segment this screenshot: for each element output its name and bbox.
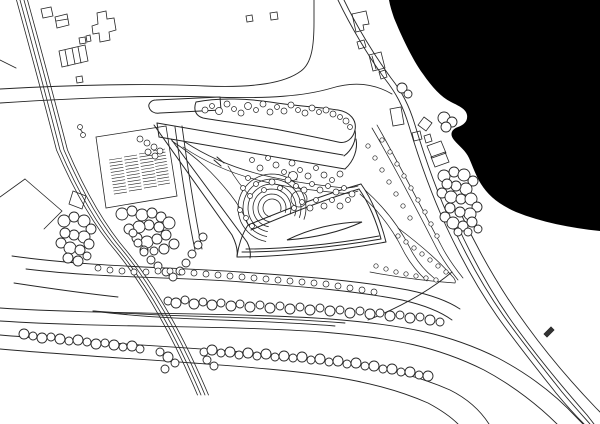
bushes-shape bbox=[150, 247, 158, 255]
bushes-shape bbox=[163, 217, 175, 229]
trees-shape bbox=[371, 289, 377, 295]
trees-shape bbox=[307, 205, 313, 211]
site-plan-svg bbox=[0, 0, 600, 424]
context-buildings-shape bbox=[76, 76, 83, 83]
bushes-shape bbox=[474, 225, 482, 233]
bushes-shape bbox=[256, 301, 264, 309]
trees-shape bbox=[248, 194, 253, 199]
bushes-shape bbox=[376, 309, 384, 317]
trees-shape bbox=[305, 173, 311, 179]
trees-shape bbox=[254, 108, 259, 113]
trees-shape bbox=[395, 162, 399, 166]
bushes-shape bbox=[194, 241, 202, 249]
bushes-shape bbox=[351, 358, 361, 368]
main-building-shape bbox=[361, 184, 386, 242]
bushes-shape bbox=[199, 298, 207, 306]
trees-shape bbox=[273, 162, 279, 168]
trees-shape bbox=[310, 182, 315, 187]
trees-shape bbox=[380, 168, 384, 172]
trees-shape bbox=[366, 144, 370, 148]
bushes-shape bbox=[147, 256, 155, 264]
bushes-shape bbox=[159, 244, 169, 254]
trees-shape bbox=[317, 187, 323, 193]
bushes-shape bbox=[19, 329, 29, 339]
trees-shape bbox=[311, 280, 317, 286]
bushes-shape bbox=[243, 348, 253, 358]
trees-shape bbox=[301, 187, 307, 193]
trees-shape bbox=[412, 246, 416, 250]
trees-shape bbox=[323, 281, 329, 287]
trees-shape bbox=[137, 136, 143, 142]
trees-shape bbox=[246, 176, 251, 181]
bushes-shape bbox=[261, 349, 271, 359]
bushes-shape bbox=[235, 351, 243, 359]
amphitheater-shape bbox=[248, 184, 296, 232]
bushes-shape bbox=[217, 349, 225, 357]
bushes-shape bbox=[129, 229, 137, 237]
bushes-shape bbox=[73, 256, 83, 266]
bushes-shape bbox=[415, 371, 423, 379]
bushes-shape bbox=[265, 303, 275, 313]
bushes-shape bbox=[226, 301, 236, 311]
bushes-shape bbox=[397, 368, 405, 376]
trees-shape bbox=[238, 208, 243, 213]
trees-shape bbox=[296, 108, 301, 113]
bushes-shape bbox=[147, 208, 157, 218]
trees-shape bbox=[152, 153, 158, 159]
context-buildings-shape bbox=[72, 48, 75, 64]
context-buildings-shape bbox=[78, 47, 81, 63]
trees-shape bbox=[289, 160, 295, 166]
bushes-shape bbox=[69, 212, 79, 222]
trees-shape bbox=[299, 279, 305, 285]
bushes-shape bbox=[60, 228, 70, 238]
bushes-shape bbox=[91, 339, 101, 349]
bushes-shape bbox=[225, 347, 235, 357]
main-building-shape bbox=[237, 242, 386, 257]
trees-shape bbox=[167, 268, 173, 274]
trees-shape bbox=[326, 184, 331, 189]
context-buildings-shape bbox=[56, 19, 68, 21]
trees-shape bbox=[330, 111, 336, 117]
trees-shape bbox=[444, 270, 448, 274]
trees-shape bbox=[424, 276, 428, 280]
context-buildings-shape bbox=[390, 107, 404, 126]
trees-shape bbox=[143, 269, 149, 275]
trees-shape bbox=[241, 186, 246, 191]
trees-shape bbox=[292, 206, 297, 211]
trees-shape bbox=[314, 198, 319, 203]
bushes-shape bbox=[161, 230, 171, 240]
trees-shape bbox=[95, 265, 101, 271]
trees-shape bbox=[416, 198, 420, 202]
bushes-shape bbox=[210, 362, 218, 370]
garden-paths-shape bbox=[370, 228, 455, 283]
trees-shape bbox=[374, 264, 378, 268]
trees-shape bbox=[215, 272, 221, 278]
trees-shape bbox=[155, 268, 161, 274]
bushes-shape bbox=[325, 306, 335, 316]
bushes-shape bbox=[245, 302, 255, 312]
bushes-shape bbox=[83, 252, 91, 260]
bushes-shape bbox=[171, 359, 179, 367]
trees-shape bbox=[107, 267, 113, 273]
trees-shape bbox=[269, 179, 275, 185]
context-buildings-shape bbox=[92, 11, 116, 42]
trees-shape bbox=[435, 234, 439, 238]
bushes-shape bbox=[199, 233, 207, 241]
bushes-shape bbox=[217, 299, 225, 307]
trees-shape bbox=[323, 107, 329, 113]
bushes-shape bbox=[449, 167, 459, 177]
bushes-shape bbox=[365, 309, 375, 319]
water-body bbox=[389, 0, 600, 231]
bushes-shape bbox=[387, 364, 397, 374]
trees-shape bbox=[330, 198, 335, 203]
bushes-shape bbox=[336, 306, 344, 314]
trees-shape bbox=[314, 166, 319, 171]
trees-shape bbox=[394, 192, 398, 196]
bushes-shape bbox=[64, 242, 76, 254]
trees-shape bbox=[317, 110, 322, 115]
trees-shape bbox=[250, 224, 255, 229]
context-buildings-shape bbox=[379, 70, 387, 79]
context-buildings-shape bbox=[79, 37, 86, 44]
trees-shape bbox=[428, 258, 432, 262]
trees-shape bbox=[388, 150, 392, 154]
trees-shape bbox=[408, 216, 412, 220]
roads-shape bbox=[182, 126, 202, 249]
bushes-shape bbox=[271, 353, 279, 361]
bushes-shape bbox=[188, 250, 196, 258]
bushes-shape bbox=[343, 360, 351, 368]
bushes-shape bbox=[305, 305, 315, 315]
roads-shape bbox=[0, 335, 489, 424]
trees-shape bbox=[281, 108, 287, 114]
trees-shape bbox=[434, 278, 438, 282]
trees-shape bbox=[260, 101, 266, 107]
bushes-shape bbox=[101, 339, 109, 347]
bushes-shape bbox=[154, 222, 164, 232]
trees-shape bbox=[267, 109, 273, 115]
trees-shape bbox=[401, 204, 405, 208]
bushes-shape bbox=[379, 365, 387, 373]
trees-shape bbox=[342, 186, 347, 191]
bushes-shape bbox=[84, 239, 94, 249]
bushes-shape bbox=[236, 300, 244, 308]
trees-shape bbox=[309, 105, 315, 111]
bushes-shape bbox=[144, 220, 154, 230]
trees-shape bbox=[131, 269, 137, 275]
trees-shape bbox=[409, 186, 413, 190]
trees-shape bbox=[337, 203, 343, 209]
context-buildings-shape bbox=[41, 7, 53, 18]
trees-shape bbox=[347, 285, 353, 291]
bushes-shape bbox=[116, 208, 128, 220]
bushes-shape bbox=[171, 298, 181, 308]
bushes-shape bbox=[445, 203, 455, 213]
trees-shape bbox=[294, 184, 299, 189]
bushes-shape bbox=[156, 348, 164, 356]
trees-shape bbox=[380, 138, 384, 142]
bushes-shape bbox=[136, 209, 148, 221]
trees-shape bbox=[202, 107, 208, 113]
trees-shape bbox=[266, 156, 271, 161]
bushes-shape bbox=[285, 304, 295, 314]
bushes-shape bbox=[416, 313, 424, 321]
trees-shape bbox=[396, 234, 400, 238]
trees-shape bbox=[210, 104, 215, 109]
trees-shape bbox=[359, 287, 365, 293]
trees-shape bbox=[216, 108, 223, 115]
bushes-shape bbox=[279, 351, 289, 361]
bushes-shape bbox=[316, 304, 324, 312]
bushes-shape bbox=[169, 239, 179, 249]
trees-shape bbox=[263, 276, 269, 282]
trees-shape bbox=[145, 149, 151, 155]
bushes-shape bbox=[276, 302, 284, 310]
trees-shape bbox=[335, 283, 341, 289]
roads-shape bbox=[0, 0, 314, 89]
water-body-shape bbox=[389, 0, 600, 231]
trees-shape bbox=[429, 222, 433, 226]
trees-shape bbox=[337, 171, 343, 177]
bushes-shape bbox=[289, 354, 297, 362]
trees-shape bbox=[250, 158, 255, 163]
bushes-shape bbox=[182, 259, 190, 267]
trees-shape bbox=[300, 200, 305, 205]
context-buildings-shape bbox=[431, 152, 449, 167]
trees-shape bbox=[157, 148, 163, 154]
bushes-shape bbox=[441, 122, 451, 132]
bushes-shape bbox=[333, 356, 343, 366]
trees-shape bbox=[333, 189, 339, 195]
bushes-shape bbox=[207, 300, 217, 310]
context-buildings-shape bbox=[372, 56, 376, 69]
trees-shape bbox=[394, 270, 398, 274]
trees-shape bbox=[278, 186, 283, 191]
context-buildings-shape bbox=[25, 179, 62, 229]
bushes-shape bbox=[73, 335, 83, 345]
trees-shape bbox=[245, 103, 252, 110]
roads-shape bbox=[0, 349, 458, 424]
trees-shape bbox=[404, 272, 408, 276]
bushes-shape bbox=[65, 337, 73, 345]
garden-paths bbox=[172, 125, 463, 283]
bushes-shape bbox=[136, 345, 144, 353]
bushes-shape bbox=[307, 356, 315, 364]
trees-shape bbox=[254, 182, 259, 187]
bushes-shape bbox=[189, 299, 199, 309]
bushes-shape bbox=[253, 352, 261, 360]
context-buildings-shape bbox=[86, 35, 91, 42]
trees-shape bbox=[349, 191, 355, 197]
bushes-shape bbox=[447, 217, 459, 229]
amphitheater-shape bbox=[263, 199, 281, 217]
bushes-shape bbox=[161, 365, 169, 373]
bushes-shape bbox=[423, 371, 433, 381]
trees-shape bbox=[251, 275, 257, 281]
trees-shape bbox=[257, 165, 263, 171]
bushes-shape bbox=[455, 207, 465, 217]
roads-shape bbox=[0, 60, 16, 68]
roads-shape bbox=[462, 216, 600, 412]
trees-shape bbox=[321, 203, 327, 209]
bushes-shape bbox=[55, 334, 65, 344]
bushes-shape bbox=[109, 340, 119, 350]
bushes-shape bbox=[134, 239, 142, 247]
roads-shape bbox=[544, 327, 554, 337]
trees-shape bbox=[373, 156, 377, 160]
trees-shape bbox=[387, 180, 391, 184]
bushes-shape bbox=[47, 333, 55, 341]
trees-shape bbox=[423, 210, 427, 214]
roads-shape bbox=[14, 283, 118, 297]
trees-shape bbox=[420, 252, 424, 256]
bushes-shape bbox=[296, 303, 304, 311]
bushes-shape bbox=[451, 181, 461, 191]
context-buildings-shape bbox=[0, 179, 25, 197]
main-building-shape bbox=[287, 222, 362, 240]
trees-shape bbox=[287, 278, 293, 284]
trees-shape bbox=[191, 270, 197, 276]
bushes-shape bbox=[456, 194, 466, 204]
trees-shape bbox=[346, 198, 351, 203]
bushes-shape bbox=[207, 345, 217, 355]
trees-shape bbox=[302, 110, 308, 116]
bushes-shape bbox=[37, 333, 47, 343]
roads-shape bbox=[0, 321, 557, 424]
bushes-shape bbox=[127, 206, 137, 216]
site-plan-canvas bbox=[0, 0, 600, 424]
main-building-shape bbox=[159, 137, 345, 169]
context-buildings-shape bbox=[246, 15, 253, 22]
trees-shape bbox=[298, 168, 303, 173]
bushes-shape bbox=[425, 315, 435, 325]
bushes-shape bbox=[385, 311, 395, 321]
trees-shape bbox=[330, 178, 335, 183]
bushes-shape bbox=[69, 230, 79, 240]
trees-shape bbox=[384, 267, 388, 271]
bushes-shape bbox=[83, 338, 91, 346]
trees-shape bbox=[224, 101, 230, 107]
trees-shape bbox=[179, 269, 185, 275]
context-buildings-shape bbox=[65, 50, 68, 66]
bushes-shape bbox=[442, 179, 452, 189]
trees-shape bbox=[275, 105, 280, 110]
trees-shape bbox=[239, 274, 245, 280]
roads-shape bbox=[0, 308, 583, 424]
trees-shape bbox=[151, 144, 157, 150]
bushes-shape bbox=[464, 228, 472, 236]
trees-shape bbox=[414, 274, 418, 278]
context-buildings-shape bbox=[270, 12, 278, 20]
trees-shape bbox=[404, 240, 408, 244]
trees-shape bbox=[282, 170, 287, 175]
bushes bbox=[19, 83, 482, 381]
trees-shape bbox=[348, 125, 353, 130]
trees-shape bbox=[343, 118, 349, 124]
trees-shape bbox=[321, 172, 327, 178]
bushes-shape bbox=[396, 311, 404, 319]
bushes-shape bbox=[297, 352, 307, 362]
bushes-shape bbox=[356, 307, 364, 315]
bushes-shape bbox=[361, 362, 369, 370]
trees-shape bbox=[203, 271, 209, 277]
bushes-shape bbox=[127, 341, 137, 351]
bushes-shape bbox=[63, 253, 73, 263]
bushes-shape bbox=[152, 234, 162, 244]
bushes-shape bbox=[369, 361, 379, 371]
main-building bbox=[149, 97, 386, 258]
bushes-shape bbox=[405, 367, 415, 377]
trees-shape bbox=[144, 140, 150, 146]
trees-shape bbox=[244, 216, 249, 221]
trees-shape bbox=[238, 110, 244, 116]
trees-shape bbox=[119, 268, 125, 274]
bushes-shape bbox=[454, 228, 462, 236]
trees-shape bbox=[232, 107, 237, 112]
trees-shape bbox=[288, 102, 294, 108]
bushes-shape bbox=[29, 332, 37, 340]
trees-shape bbox=[285, 177, 291, 183]
bushes-shape bbox=[404, 90, 412, 98]
context-buildings bbox=[0, 7, 449, 229]
trees-shape bbox=[338, 115, 343, 120]
bushes-shape bbox=[315, 354, 325, 364]
bushes-shape bbox=[181, 296, 189, 304]
trees-shape bbox=[275, 277, 281, 283]
bushes-shape bbox=[203, 356, 211, 364]
context-buildings-shape bbox=[424, 134, 432, 143]
bushes-shape bbox=[140, 248, 148, 256]
trees-shape bbox=[81, 133, 86, 138]
bushes-shape bbox=[436, 318, 444, 326]
trees-shape bbox=[227, 273, 233, 279]
bushes-shape bbox=[445, 191, 457, 203]
trees-shape bbox=[78, 125, 83, 130]
bushes-shape bbox=[345, 308, 355, 318]
trees-shape bbox=[402, 174, 406, 178]
bushes-shape bbox=[405, 313, 415, 323]
trees-shape bbox=[262, 188, 267, 193]
site-plan bbox=[0, 0, 600, 424]
bushes-shape bbox=[58, 215, 70, 227]
bushes-shape bbox=[325, 358, 333, 366]
trees-shape bbox=[436, 264, 440, 268]
context-buildings-shape bbox=[418, 117, 432, 131]
bushes-shape bbox=[119, 343, 127, 351]
